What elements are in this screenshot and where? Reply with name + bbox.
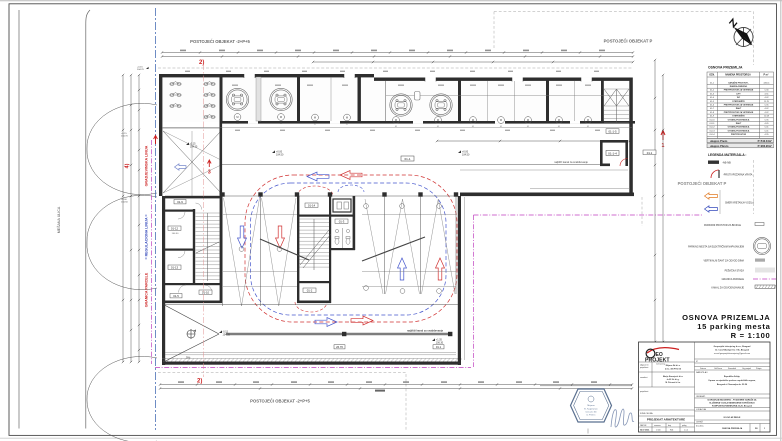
- svg-text:KOMPLEKSA NEMANJINA 22-26, Beo: KOMPLEKSA NEMANJINA 22-26, Beograd: [712, 405, 753, 408]
- svg-text:OSNOVA PRIZEMLJA: OSNOVA PRIZEMLJA: [722, 427, 743, 430]
- svg-text:VERTIKALNI ŠAHT ZA ODVOD DIMA: VERTIKALNI ŠAHT ZA ODVOD DIMA: [703, 260, 744, 263]
- svg-text:+0.15: +0.15: [121, 133, 127, 135]
- svg-text:GRADJEVINSKA LINIJA: GRADJEVINSKA LINIJA: [145, 145, 149, 186]
- svg-text:M: M: [558, 118, 560, 122]
- svg-text:RAMPA+PARKING: RAMPA+PARKING: [730, 85, 748, 88]
- svg-text:OSTAVA-PODSTANICA: OSTAVA-PODSTANICA: [728, 126, 750, 129]
- svg-text:Uprava za zajedničke poslove r: Uprava za zajedničke poslove republičkih…: [708, 379, 756, 382]
- svg-text:104.70: 104.70: [121, 136, 128, 138]
- svg-text:12. Cara Nikolaja II br. 73b,: 12. Cara Nikolaja II br. 73b, Beograd: [715, 350, 750, 352]
- svg-text:KO-NO 45 ŠEKLE: KO-NO 45 ŠEKLE: [724, 416, 741, 419]
- svg-text:04.07.2022.: 04.07.2022.: [640, 429, 650, 432]
- svg-text:dr M. Ilić d.i.g.: dr M. Ilić d.i.g.: [667, 379, 680, 381]
- svg-text:FUNK.CELINA: FUNK.CELINA: [640, 412, 653, 415]
- svg-text:POSTOJEĆI OBJEKAT -2+P+5: POSTOJEĆI OBJEKAT -2+P+5: [250, 399, 310, 404]
- svg-text:= REGULACIONA LINIJA =: = REGULACIONA LINIJA =: [145, 214, 149, 259]
- svg-text:NARUČILAC:: NARUČILAC:: [696, 371, 709, 374]
- svg-text:WC: WC: [737, 97, 741, 99]
- svg-text:01-13: 01-13: [709, 130, 715, 132]
- svg-text:P=963.90m²: P=963.90m²: [758, 144, 772, 148]
- svg-text:GRANICA PARCELE: GRANICA PARCELE: [722, 278, 745, 281]
- svg-text:Đ. Kapetanov: Đ. Kapetanov: [584, 408, 598, 411]
- svg-text:R = 1:100: R = 1:100: [731, 331, 771, 340]
- svg-text:POSTOJEĆI OBJEKAT -2+P+5: POSTOJEĆI OBJEKAT -2+P+5: [190, 39, 250, 44]
- svg-text:Saradnik: Saradnik: [728, 368, 736, 370]
- svg-text:MEŠANA ULICA: MEŠANA ULICA: [56, 206, 61, 233]
- svg-text:Mirjana: Mirjana: [587, 404, 595, 407]
- svg-text:5%: 5%: [186, 356, 191, 360]
- svg-text:01.1: 01.1: [647, 151, 653, 155]
- svg-text:01-13: 01-13: [171, 265, 179, 269]
- svg-text:razmera: razmera: [654, 425, 661, 427]
- svg-text:-PROTIVPOŽARNA VRATA: -PROTIVPOŽARNA VRATA: [723, 174, 753, 177]
- svg-text:M. Petrović d.i.a.: M. Petrović d.i.a.: [666, 381, 681, 384]
- svg-text:M: M: [395, 118, 397, 122]
- svg-text:Mirjana Ilić d.i.a.: Mirjana Ilić d.i.a.: [666, 365, 681, 367]
- svg-text:DATUM: DATUM: [640, 424, 647, 427]
- svg-text:GARAŽNI PROSTOR -: GARAŽNI PROSTOR -: [728, 81, 749, 84]
- svg-text:e-mail geoprojektinzenjering@g: e-mail geoprojektinzenjering@gmail.com: [714, 352, 750, 355]
- svg-text:M: M: [236, 115, 238, 119]
- svg-text:M: M: [472, 118, 474, 122]
- svg-text:01-9: 01-9: [177, 200, 183, 204]
- svg-text:LEGENDA MATERIJALA :: LEGENDA MATERIJALA :: [708, 153, 746, 157]
- svg-text:01-5: 01-5: [173, 294, 179, 298]
- svg-text:446.11: 446.11: [764, 82, 771, 84]
- svg-text:PRETPROSTOR ZA VETRENJE: PRETPROSTOR ZA VETRENJE: [724, 104, 754, 107]
- svg-text:KANAL ZA ODVODNJAVANJE: KANAL ZA ODVODNJAVANJE: [711, 287, 744, 290]
- svg-text:IZGRADNJA NADZEMNO - PODZEMNE: IZGRADNJA NADZEMNO - PODZEMNE GARAŽE ZA: [707, 399, 757, 402]
- svg-text:LOKACIJA:: LOKACIJA:: [696, 408, 707, 411]
- svg-text:M: M: [500, 118, 502, 122]
- svg-text:PRETPROSTOR: PRETPROSTOR: [731, 134, 747, 136]
- svg-text:M: M: [587, 118, 589, 122]
- svg-text:01-12: 01-12: [709, 127, 715, 129]
- svg-text:104.50: 104.50: [172, 233, 179, 235]
- svg-text:STEPENIŠTE: STEPENIŠTE: [732, 115, 745, 118]
- svg-text:PEŠAČKA STAZA: PEŠAČKA STAZA: [725, 270, 745, 273]
- svg-text:26.76: 26.76: [336, 345, 343, 349]
- svg-text:-AB-NB: -AB-NB: [722, 161, 731, 165]
- svg-text:br. P753 15: br. P753 15: [587, 414, 596, 417]
- svg-text:104.50: 104.50: [121, 202, 128, 204]
- svg-text:ukupno Pneto: ukupno Pneto: [710, 139, 728, 143]
- svg-text:PRETPROSTOR ZA VETRENJE: PRETPROSTOR ZA VETRENJE: [724, 89, 754, 92]
- svg-text:najbliži kanal za snabdevanje: najbliži kanal za snabdevanje: [407, 328, 444, 332]
- svg-text:ŠAHT: ŠAHT: [736, 107, 742, 110]
- svg-text:OSTAVA-PODSTANICA: OSTAVA-PODSTANICA: [728, 129, 750, 132]
- svg-text:projektant: projektant: [640, 366, 649, 369]
- svg-text:PRETPROSTOR ZA VETRENJE: PRETPROSTOR ZA VETRENJE: [724, 111, 754, 114]
- svg-text:01-14: 01-14: [308, 203, 316, 207]
- svg-text:Republika Srbija,: Republika Srbija,: [724, 376, 741, 378]
- svg-text:broj lista: broj lista: [696, 425, 704, 428]
- svg-text:PARKING MESTA SA ELEKTRIČNIM N: PARKING MESTA SA ELEKTRIČNIM NAPAJANJEM: [688, 246, 744, 249]
- svg-text:POSTOJEĆI OBJEKAT P: POSTOJEĆI OBJEKAT P: [604, 39, 653, 44]
- svg-text:STEPENIŠTE: STEPENIŠTE: [732, 100, 745, 103]
- svg-text:1:100: 1:100: [656, 430, 661, 432]
- svg-text:M: M: [437, 118, 439, 122]
- svg-text:SMER KRETANJA VOZILA: SMER KRETANJA VOZILA: [725, 202, 754, 205]
- svg-text:4): 4): [125, 163, 131, 168]
- svg-text:1.1.2: 1.1.2: [684, 430, 688, 432]
- svg-text:Org.zajed.: Org.zajed.: [742, 368, 752, 370]
- svg-text:NAMENA PROSTORIJA: NAMENA PROSTORIJA: [725, 74, 751, 77]
- svg-text:01-14: 01-14: [709, 134, 715, 136]
- svg-text:najbliži kanal za snabdevanje: najbliži kanal za snabdevanje: [554, 160, 588, 164]
- svg-text:01-1: 01-1: [404, 157, 410, 161]
- svg-text:01-10: 01-10: [202, 290, 210, 294]
- svg-text:inženjering: inženjering: [656, 363, 665, 366]
- svg-text:+0.00: +0.00: [121, 199, 127, 201]
- svg-text:104.35: 104.35: [223, 333, 231, 336]
- svg-text:ukupno Pbruto: ukupno Pbruto: [710, 144, 729, 148]
- svg-text:projektant: projektant: [640, 390, 649, 393]
- svg-text:M: M: [346, 116, 348, 120]
- svg-text:OBJEKAT:: OBJEKAT:: [696, 395, 706, 398]
- svg-text:01-2: 01-2: [307, 288, 313, 292]
- svg-text:PARKIRNI PROSTOR ZA BICIKLE: PARKIRNI PROSTOR ZA BICIKLE: [704, 224, 741, 227]
- svg-text:104.70: 104.70: [137, 69, 144, 71]
- svg-text:Beograd ul. Nemanjina br. 22-2: Beograd ul. Nemanjina br. 22-26: [717, 384, 748, 386]
- svg-text:ŠAHT: ŠAHT: [736, 122, 742, 125]
- svg-text:M: M: [527, 118, 529, 122]
- svg-text:OSNOVA PRIZEMLJA: OSNOVA PRIZEMLJA: [708, 66, 743, 70]
- svg-text:OSNOVA PRIZEMLJA: OSNOVA PRIZEMLJA: [682, 313, 770, 322]
- svg-text:SLUŽBENA VOZILA NAMENJENE KORI: SLUŽBENA VOZILA NAMENJENE KORIŠĆENJU: [709, 402, 755, 405]
- svg-text:OSTAVA-PODSTANICA: OSTAVA-PODSTANICA: [728, 118, 750, 121]
- svg-text:OZN.: OZN.: [709, 75, 715, 77]
- svg-text:Marija Stanojević d.i.a.: Marija Stanojević d.i.a.: [663, 375, 684, 378]
- svg-text:106.30: 106.30: [436, 341, 444, 344]
- svg-text:POSTOJEĆI OBJEKAT P: POSTOJEĆI OBJEKAT P: [678, 181, 727, 186]
- svg-text:+0.15: +0.15: [137, 67, 143, 69]
- svg-text:CRTEŽ:: CRTEŽ:: [696, 421, 704, 424]
- svg-text:01-1-4: 01-1-4: [608, 151, 617, 155]
- svg-text:104.35: 104.35: [190, 145, 198, 148]
- svg-text:P=510.34m²: P=510.34m²: [758, 139, 772, 143]
- svg-text:01-12: 01-12: [171, 226, 179, 230]
- svg-text:saradnici: saradnici: [640, 376, 648, 379]
- svg-text:Od.Dana: Od.Dana: [714, 368, 723, 370]
- svg-text:M: M: [280, 115, 282, 119]
- svg-text:prilog: prilog: [682, 425, 686, 427]
- svg-text:01-10: 01-10: [709, 119, 715, 121]
- svg-text:Geoprojekt inženjering d.o.o.,: Geoprojekt inženjering d.o.o., Beograd: [714, 345, 752, 348]
- svg-text:01-3: 01-3: [339, 219, 345, 223]
- svg-text:GRANICA PARCELE: GRANICA PARCELE: [145, 272, 149, 307]
- svg-text:01-1-5: 01-1-5: [608, 130, 617, 134]
- svg-text:R04: R04: [670, 430, 673, 432]
- svg-text:licenca br. 300: licenca br. 300: [586, 411, 597, 414]
- svg-text:Datum: Datum: [700, 367, 706, 370]
- svg-text:M: M: [314, 116, 316, 120]
- svg-text:104.50: 104.50: [276, 153, 284, 156]
- svg-text:Potpis: Potpis: [756, 367, 762, 370]
- svg-text:15 parking mesta: 15 parking mesta: [697, 322, 770, 331]
- svg-text:01.1: 01.1: [436, 345, 442, 349]
- svg-text:br.lic. 300 P753 15: br.lic. 300 P753 15: [665, 369, 681, 371]
- svg-text:104.50: 104.50: [462, 153, 470, 156]
- svg-text:PROJEKAT ARHITEKTURE: PROJEKAT ARHITEKTURE: [647, 418, 685, 422]
